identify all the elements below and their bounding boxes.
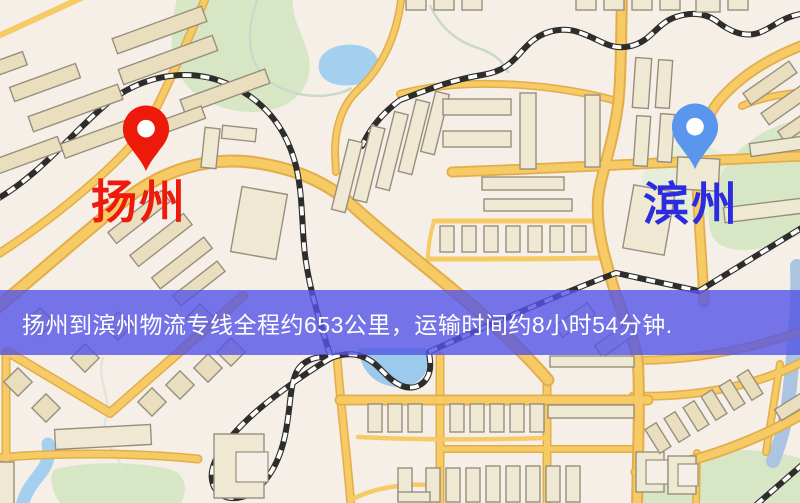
destination-label: 滨州 — [643, 179, 739, 230]
origin-label: 扬州 — [91, 177, 187, 228]
route-info-text: 扬州到滨州物流专线全程约653公里，运输时间约8小时54分钟. — [0, 306, 673, 340]
map-canvas: 扬州 滨州 — [0, 0, 800, 503]
map-image: 扬州 滨州 扬州到滨州物流专线全程约653公里，运输时间约8小时54分钟. — [0, 0, 800, 503]
route-info-banner: 扬州到滨州物流专线全程约653公里，运输时间约8小时54分钟. — [0, 290, 800, 355]
